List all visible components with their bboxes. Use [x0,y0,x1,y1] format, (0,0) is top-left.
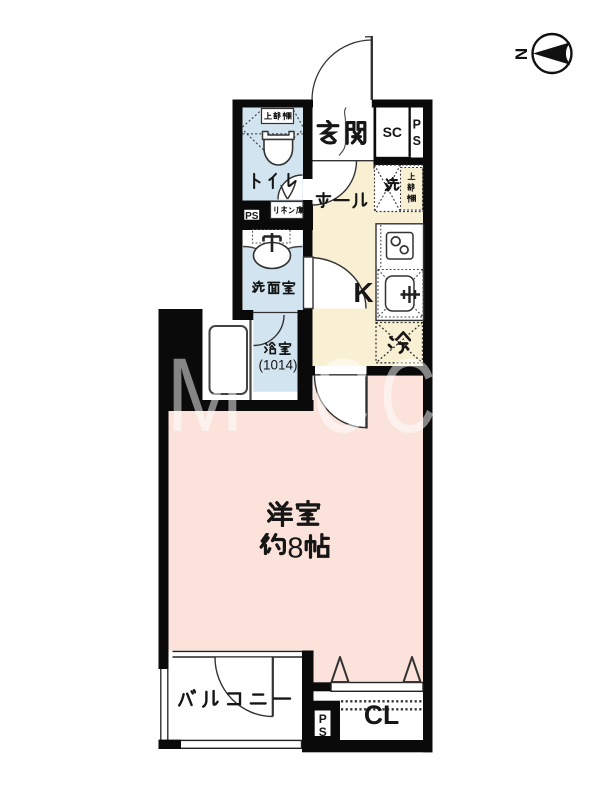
svg-text:SC: SC [383,124,402,140]
svg-text:S: S [413,134,421,148]
svg-text:M: M [166,337,244,454]
svg-text:8: 8 [287,533,303,565]
svg-text:C: C [380,338,436,455]
svg-text:P: P [413,118,421,132]
svg-text:PS: PS [245,211,259,222]
svg-text:(1014): (1014) [258,358,297,373]
svg-text:K: K [353,277,373,308]
svg-text:S: S [319,725,327,739]
svg-text:C: C [313,338,370,455]
svg-text:N: N [512,48,531,60]
svg-text:P: P [319,712,327,726]
svg-text:CL: CL [364,700,399,730]
